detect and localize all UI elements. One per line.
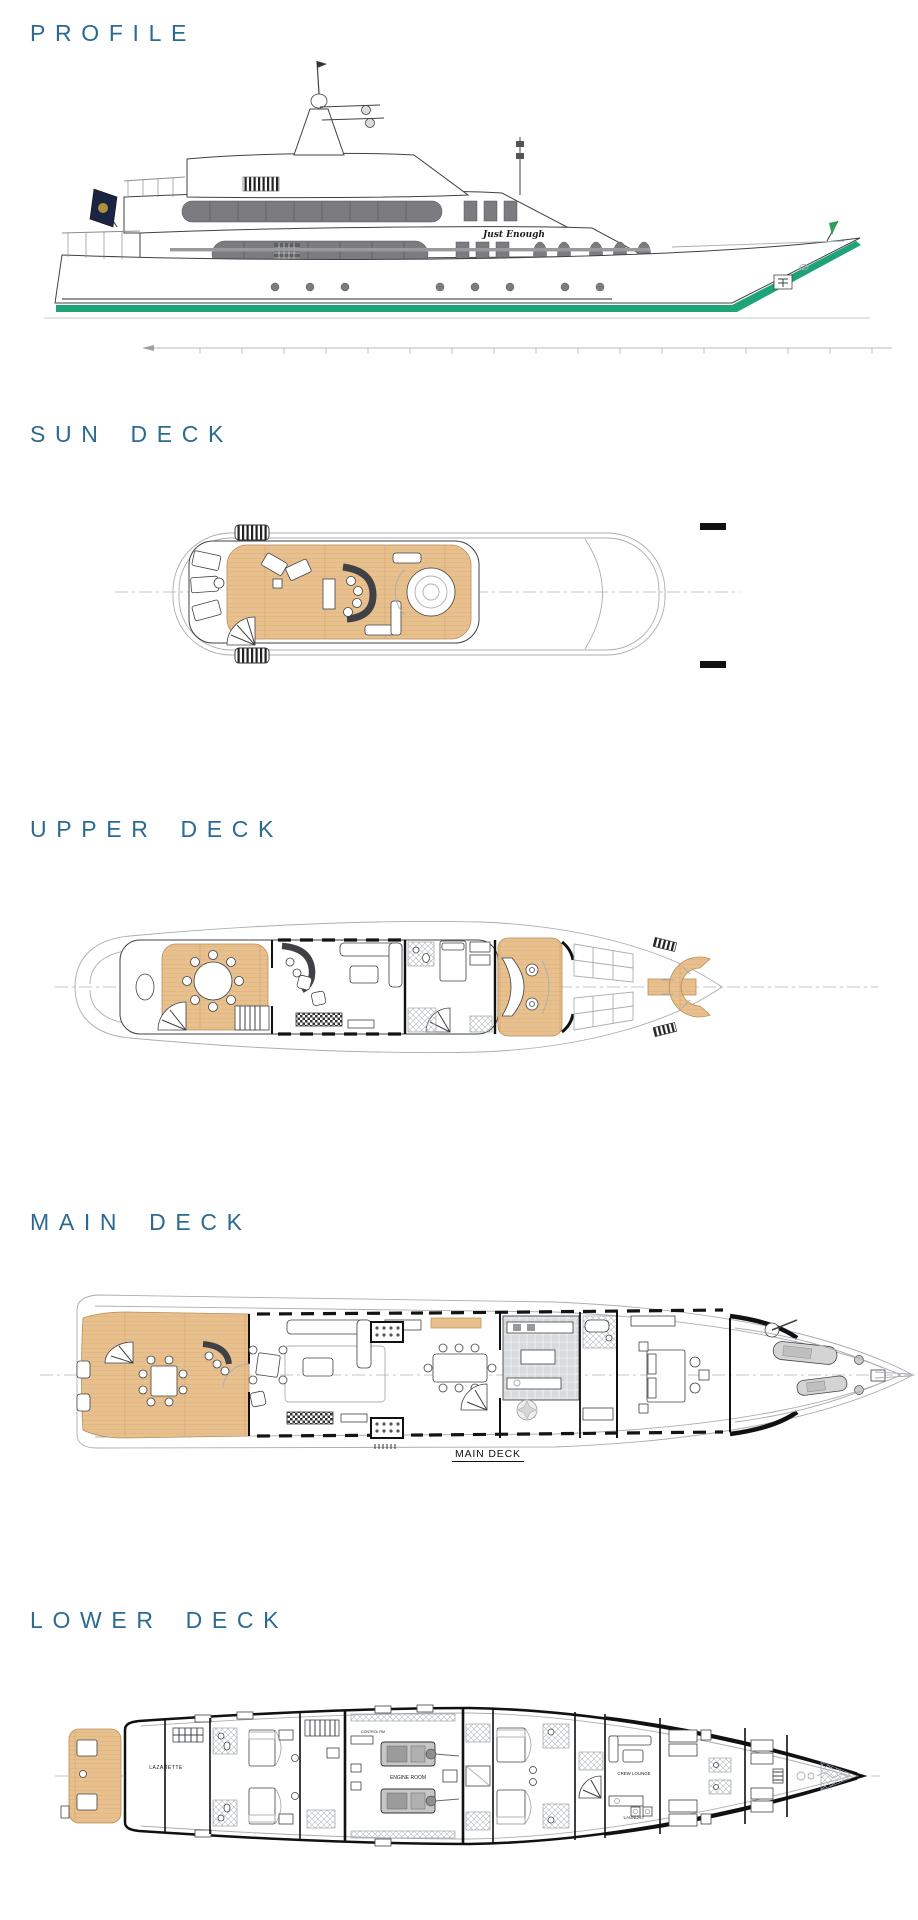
- spiral-stairs: [461, 1384, 487, 1410]
- bed: [497, 1728, 525, 1762]
- stern-flag: [90, 189, 117, 227]
- tv-cabinet: [296, 1013, 342, 1026]
- mast-footing: [700, 523, 726, 530]
- tank-space: [466, 1724, 490, 1830]
- swim-platform: [61, 1729, 121, 1823]
- dining-room: [424, 1318, 496, 1392]
- svg-text:LAZARETTE: LAZARETTE: [149, 1765, 183, 1771]
- main-deck-heading: MAIN DECK: [30, 1209, 252, 1236]
- bunk: [751, 1740, 773, 1751]
- profile-sun-structure: [124, 61, 524, 198]
- svg-text:CONTROL RM: CONTROL RM: [361, 1730, 385, 1734]
- lower-deck-plan: LAZARETTE: [45, 1678, 885, 1913]
- main-deck-plan: [35, 1258, 918, 1453]
- bunk: [669, 1730, 697, 1742]
- aft-deck: [77, 1312, 249, 1438]
- vent-box: [235, 648, 269, 663]
- vent-boxes: [371, 1322, 403, 1449]
- profile-heading: PROFILE: [30, 20, 196, 47]
- bunk: [751, 1753, 773, 1764]
- bow-seating: [648, 937, 710, 1036]
- yacht-name: Just Enough: [481, 230, 545, 240]
- lower-deck-heading: LOWER DECK: [30, 1607, 288, 1634]
- game-table: [256, 1353, 281, 1378]
- bow-flag: [827, 221, 838, 241]
- bed: [497, 1790, 525, 1824]
- sun-loungers: [191, 550, 224, 621]
- bunk: [751, 1801, 773, 1812]
- satdome-icon: [366, 119, 375, 128]
- sun-deck-plan: [115, 513, 740, 688]
- bunk: [669, 1800, 697, 1812]
- sun-deck-heading: SUN DECK: [30, 421, 233, 448]
- upper-deck-heading: UPPER DECK: [30, 816, 283, 843]
- svg-text:CREW LOUNGE: CREW LOUNGE: [617, 1771, 650, 1776]
- main-deck-plan-label: MAIN DECK: [452, 1448, 524, 1462]
- dining-table: [433, 1354, 487, 1382]
- alfresco-dining: [183, 951, 244, 1012]
- satdome-icon: [362, 106, 371, 115]
- aft-table: [136, 974, 154, 1000]
- yacht-plans-page: PROFILE: [0, 0, 918, 1920]
- svg-text:ENGINE ROOM: ENGINE ROOM: [390, 1775, 426, 1781]
- mast-footing: [700, 661, 726, 668]
- tv-cabinet: [287, 1412, 333, 1424]
- bunk: [751, 1788, 773, 1799]
- bed: [249, 1788, 275, 1824]
- profile-drawing: Just Enough: [32, 55, 877, 325]
- pilothouse: [498, 938, 573, 1036]
- radar-arch: [294, 109, 344, 155]
- vent-box: [235, 525, 269, 540]
- settee: [393, 553, 421, 563]
- scale-ruler: [140, 344, 902, 360]
- bunk: [669, 1744, 697, 1756]
- radar-dome: [311, 94, 327, 108]
- upper-deck-plan: [50, 910, 918, 1065]
- bed: [249, 1730, 275, 1766]
- aft-table: [151, 1366, 177, 1396]
- masthead-flag-icon: [317, 61, 327, 68]
- bunk: [669, 1814, 697, 1826]
